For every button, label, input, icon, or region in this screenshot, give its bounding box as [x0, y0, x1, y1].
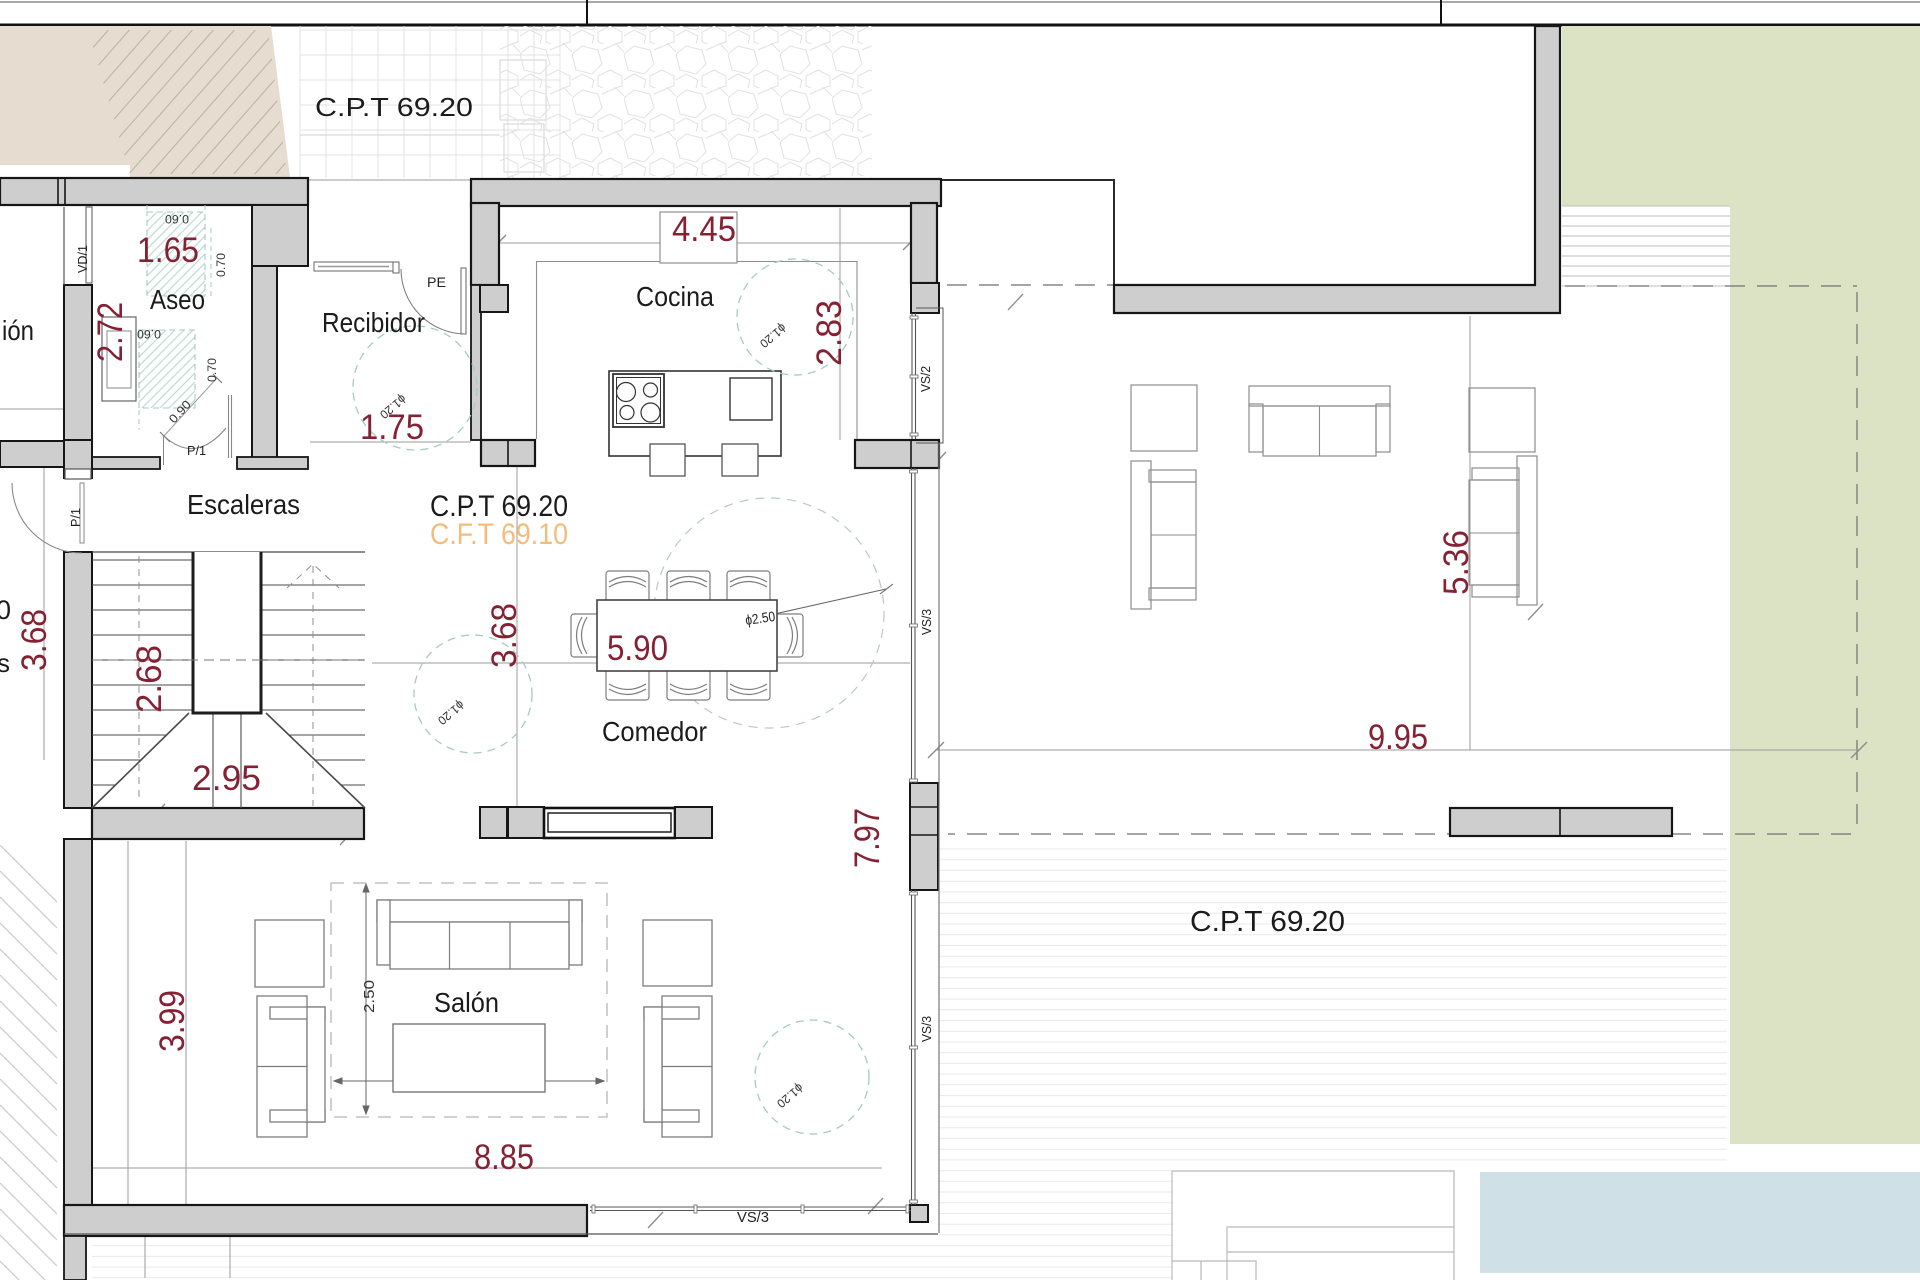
- svg-text:P/1: P/1: [187, 443, 206, 458]
- svg-text:2.68: 2.68: [130, 645, 169, 713]
- svg-text:VS/3: VS/3: [737, 1209, 769, 1226]
- svg-text:2.72: 2.72: [91, 302, 130, 362]
- svg-text:0: 0: [0, 595, 11, 625]
- svg-text:0.70: 0.70: [205, 358, 219, 382]
- svg-text:0.60: 0.60: [165, 212, 189, 226]
- svg-text:C.P.T 69.20: C.P.T 69.20: [1190, 906, 1345, 938]
- svg-text:s: s: [0, 648, 10, 678]
- svg-text:P/1: P/1: [68, 508, 83, 527]
- svg-text:PE: PE: [427, 274, 446, 290]
- svg-text:1.65: 1.65: [137, 231, 199, 270]
- svg-text:3.68: 3.68: [15, 609, 54, 671]
- svg-text:ión: ión: [2, 315, 34, 346]
- svg-text:VS/3: VS/3: [919, 609, 934, 635]
- svg-text:8.85: 8.85: [474, 1138, 534, 1177]
- svg-text:Comedor: Comedor: [602, 716, 707, 747]
- svg-text:3.68: 3.68: [485, 603, 524, 668]
- svg-text:7.97: 7.97: [848, 808, 887, 868]
- svg-text:2.95: 2.95: [192, 759, 261, 798]
- svg-text:VS/2: VS/2: [918, 366, 933, 392]
- svg-text:2.50: 2.50: [361, 980, 378, 1013]
- svg-text:C.F.T 69.10: C.F.T 69.10: [430, 518, 568, 551]
- svg-text:VS/3: VS/3: [919, 1016, 934, 1042]
- svg-text:3.99: 3.99: [153, 990, 192, 1052]
- svg-text:Salón: Salón: [434, 987, 499, 1018]
- svg-text:VD/1: VD/1: [75, 245, 90, 273]
- svg-text:2.83: 2.83: [810, 300, 849, 366]
- svg-text:1.75: 1.75: [360, 408, 424, 447]
- svg-text:0.60: 0.60: [137, 327, 161, 341]
- svg-text:Aseo: Aseo: [150, 284, 205, 315]
- svg-text:Recibidor: Recibidor: [322, 307, 425, 338]
- svg-text:4.45: 4.45: [672, 210, 736, 249]
- svg-text:C.P.T 69.20: C.P.T 69.20: [315, 92, 473, 122]
- svg-text:Escaleras: Escaleras: [187, 489, 300, 520]
- svg-text:5.90: 5.90: [607, 629, 668, 668]
- svg-text:9.95: 9.95: [1368, 718, 1428, 757]
- svg-text:0.70: 0.70: [214, 253, 228, 277]
- svg-text:5.36: 5.36: [1437, 530, 1476, 595]
- svg-text:Cocina: Cocina: [636, 281, 714, 312]
